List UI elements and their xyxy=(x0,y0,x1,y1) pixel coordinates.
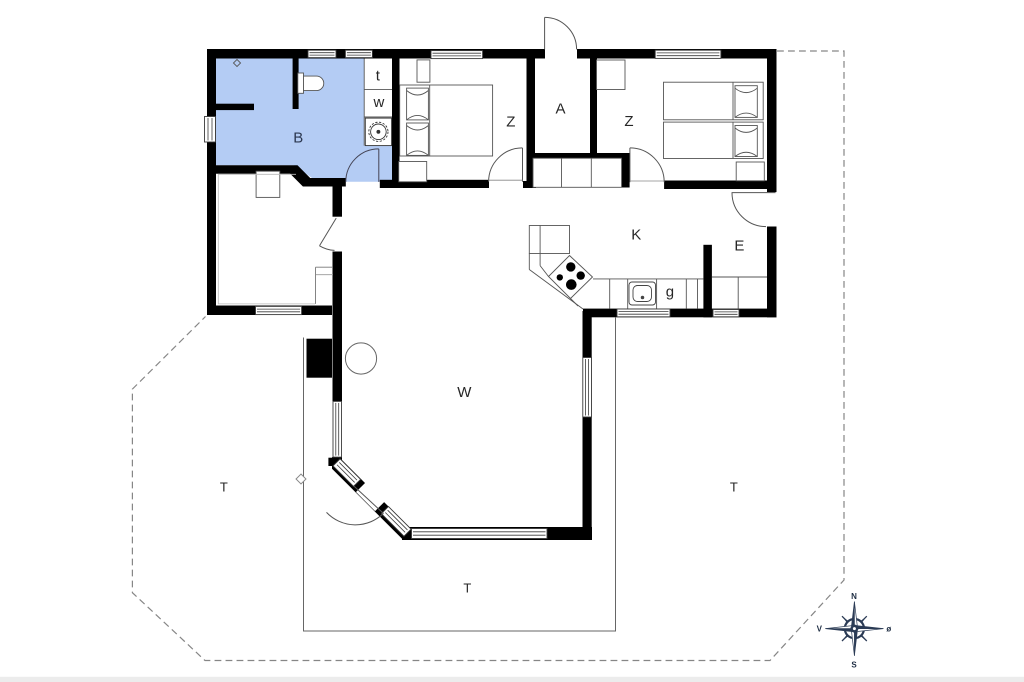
svg-text:N: N xyxy=(851,592,857,601)
svg-text:T: T xyxy=(730,480,738,495)
svg-text:T: T xyxy=(220,480,228,495)
svg-text:B: B xyxy=(293,130,303,147)
svg-text:E: E xyxy=(734,238,744,255)
svg-text:g: g xyxy=(666,284,674,301)
svg-text:Z: Z xyxy=(506,114,515,131)
svg-text:W: W xyxy=(457,384,472,401)
svg-text:K: K xyxy=(631,227,641,244)
svg-text:ø: ø xyxy=(886,625,891,634)
svg-text:S: S xyxy=(851,661,857,670)
svg-text:A: A xyxy=(555,101,565,118)
svg-text:w: w xyxy=(372,94,384,111)
svg-text:Z: Z xyxy=(624,113,633,130)
svg-text:V: V xyxy=(817,625,823,634)
svg-text:T: T xyxy=(463,581,471,596)
